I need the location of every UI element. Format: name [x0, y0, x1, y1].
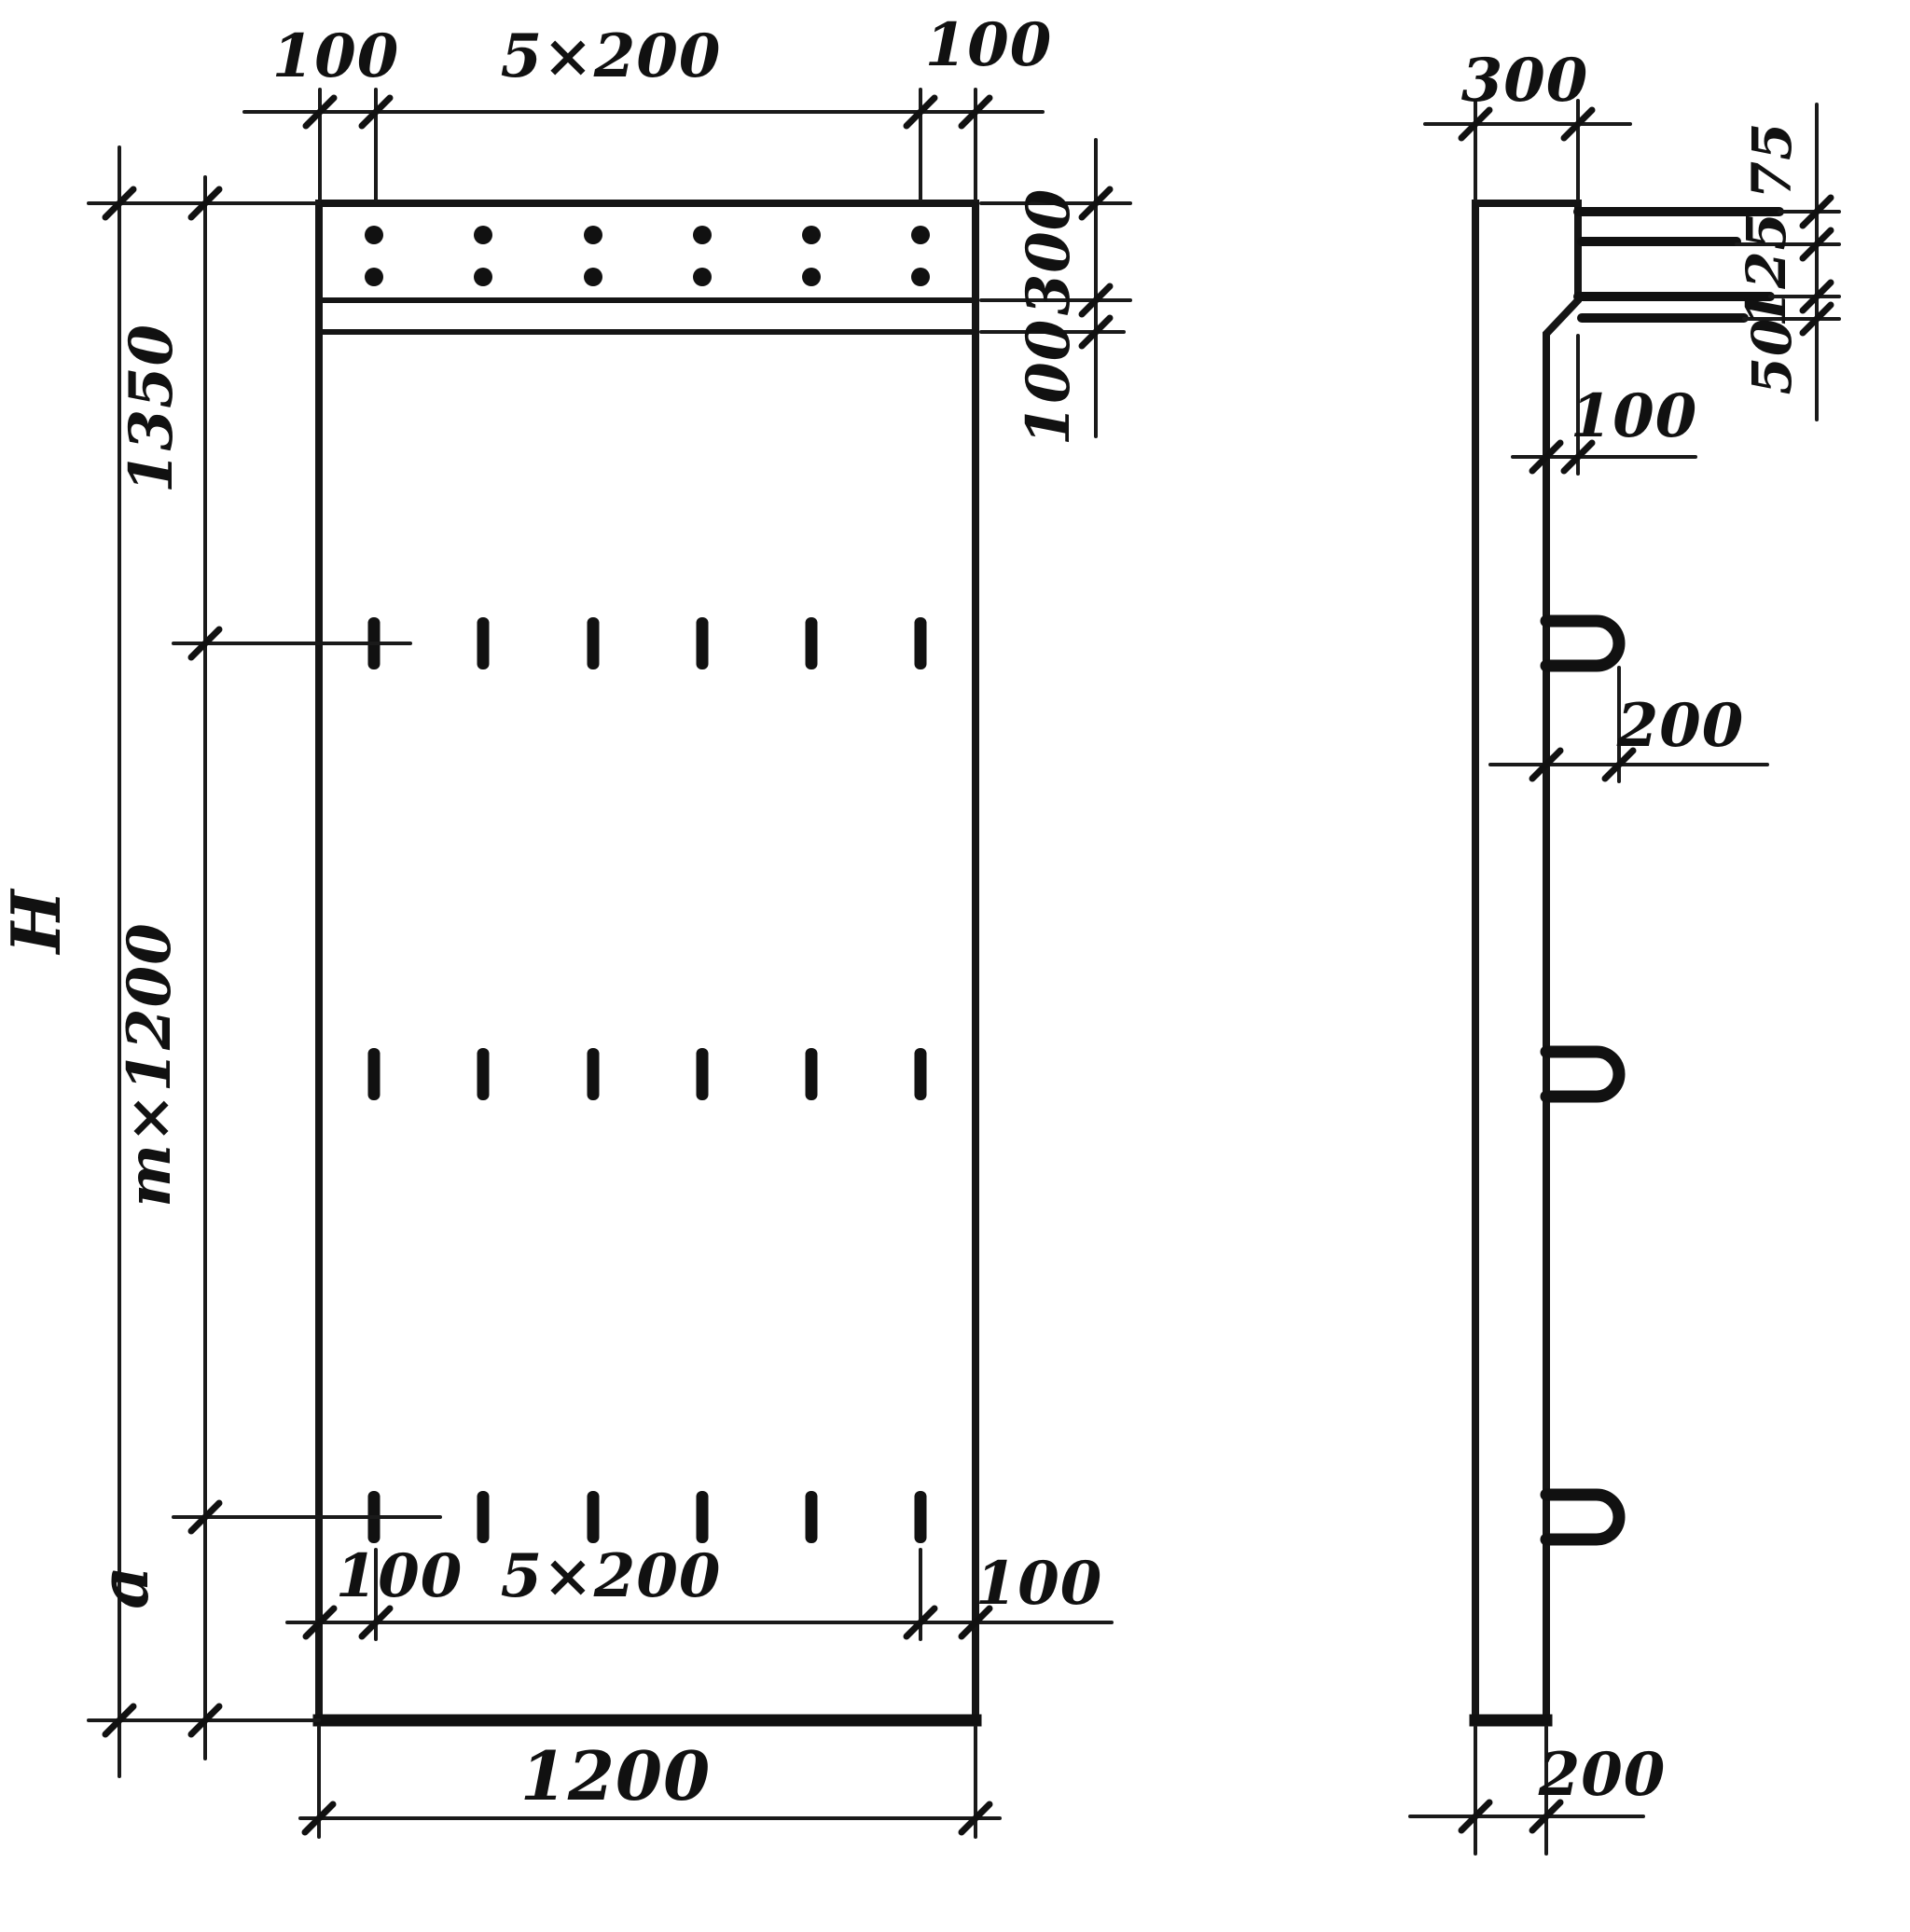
dim-front-left-H: H: [0, 889, 76, 956]
dim-front-top-right: 100: [925, 10, 1053, 80]
side-view: 300 75 125 50 100: [1410, 46, 1839, 1854]
anchor-dot-grid: [365, 226, 930, 286]
side-right-dim-chain: 75 125 50: [1735, 104, 1839, 420]
drawing-sheet: 100 5×200 100 300 100: [0, 0, 1910, 1932]
dim-side-loop-200: 200: [1616, 691, 1745, 761]
dim-front-bottom-left: 100: [336, 1541, 464, 1611]
dim-side-75: 75: [1740, 122, 1804, 200]
panel-drawing: 100 5×200 100 300 100: [0, 0, 1910, 1932]
embed-dash-grid: [368, 617, 927, 1543]
dim-front-left-1350: 1350: [117, 324, 187, 493]
side-loop-dim: 200: [1490, 668, 1767, 781]
dim-front-left-m1200: m×1200: [115, 922, 185, 1207]
lifting-loops: [1546, 621, 1619, 1539]
dim-front-gap-100: 100: [1014, 319, 1084, 447]
dim-front-width-1200: 1200: [520, 1736, 711, 1815]
front-width-dim: 1200: [300, 1727, 1000, 1837]
dim-front-top-left: 100: [272, 21, 400, 91]
front-right-dim-chain: 300 100: [981, 140, 1130, 446]
dim-front-strip-300: 300: [1014, 188, 1084, 316]
dim-front-bottom-spacing: 5×200: [501, 1541, 722, 1611]
side-ledge-dim: 100: [1513, 336, 1697, 474]
side-top-dim: 300: [1425, 46, 1630, 200]
front-view: 100 5×200 100 300 100: [0, 10, 1130, 1837]
side-bottom-dim: 200: [1410, 1727, 1666, 1854]
front-bottom-dim-chain: 100 5×200 100: [287, 1541, 1112, 1639]
dim-side-top-300: 300: [1461, 46, 1589, 116]
dim-side-125: 125: [1735, 212, 1798, 327]
front-top-dim-chain: 100 5×200 100: [244, 10, 1052, 200]
panel-outline: [319, 203, 976, 1720]
dim-side-ledge-100: 100: [1571, 381, 1698, 451]
dim-front-bottom-right: 100: [976, 1549, 1103, 1619]
dim-side-50: 50: [1740, 318, 1804, 395]
dim-front-left-a: a: [84, 1565, 163, 1609]
dim-front-top-spacing: 5×200: [501, 21, 722, 91]
dim-side-bottom-200: 200: [1538, 1740, 1667, 1810]
